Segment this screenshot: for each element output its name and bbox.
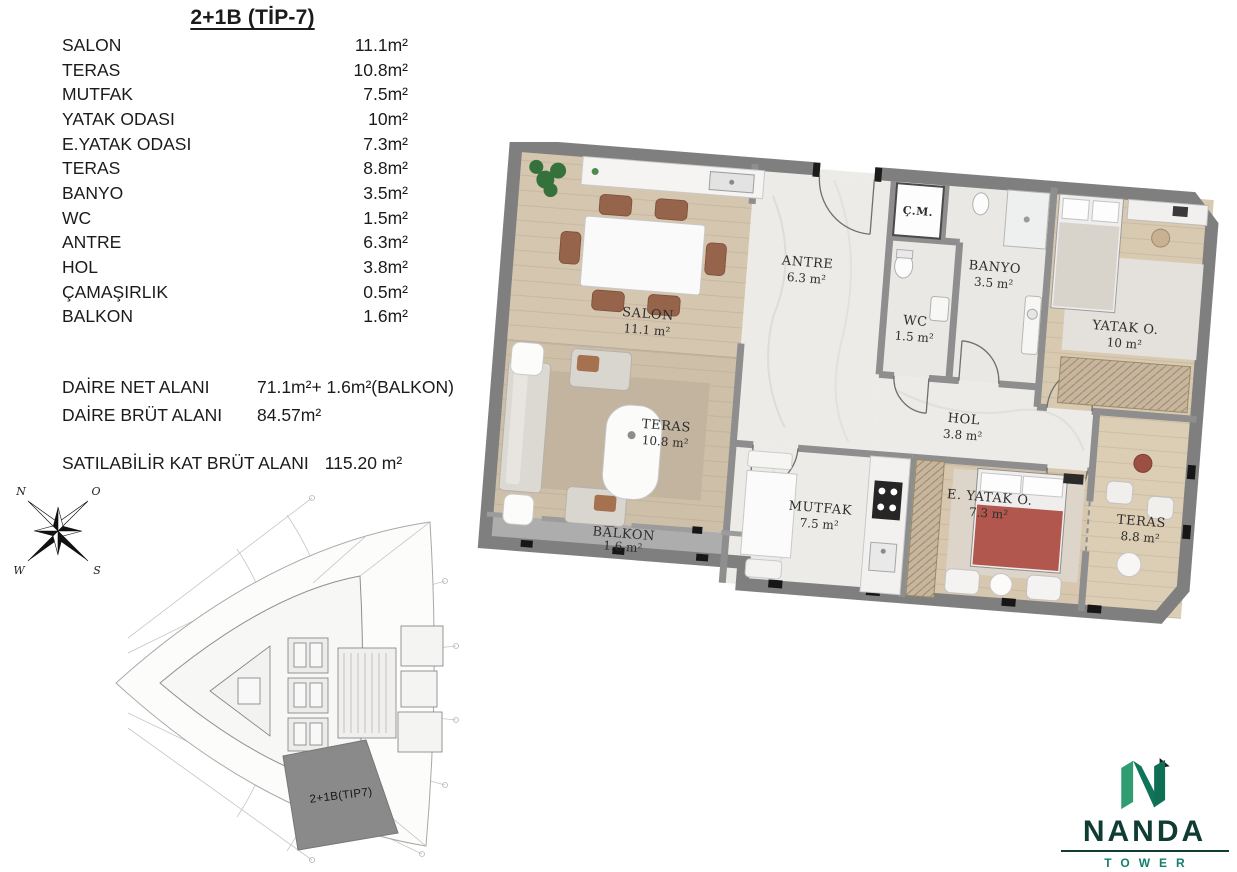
room-label: E.YATAK ODASI	[62, 132, 191, 157]
nanda-n-mark-icon	[1109, 758, 1181, 815]
room-label-wc: WC	[903, 313, 929, 330]
table-row: WC1.5m²	[62, 206, 408, 231]
room-area: 3.8m²	[363, 255, 408, 280]
room-label: ANTRE	[62, 230, 121, 255]
room-area-yatak: 10 m²	[1106, 335, 1142, 352]
room-label: TERAS	[62, 156, 120, 181]
room-area: 7.3m²	[363, 132, 408, 157]
logo-subtitle: TOWER	[1095, 856, 1193, 870]
compass-star	[28, 501, 88, 561]
room-label-hol: HOL	[947, 411, 981, 428]
compass-north-label: N	[15, 485, 26, 498]
gross-area-row: DAİRE BRÜT ALANI 84.57m²	[62, 402, 482, 430]
nanda-tower-logo: NANDA TOWER	[1052, 758, 1237, 870]
room-label: WC	[62, 206, 91, 231]
table-row: SALON11.1m²	[62, 33, 408, 58]
table-row: E.YATAK ODASI7.3m²	[62, 132, 408, 157]
plan-rotated-group: SALON 11.1 m² TERAS 10.8 m² BALKON 1.6 m…	[483, 142, 1218, 620]
table-row: BALKON1.6m²	[62, 304, 408, 329]
net-area-value: 71.1m²+ 1.6m²(BALKON)	[257, 374, 454, 402]
logo-wordmark: NANDA	[1083, 817, 1206, 847]
room-area: 1.6m²	[363, 304, 408, 329]
room-area: 10m²	[368, 107, 408, 132]
table-row: ÇAMAŞIRLIK0.5m²	[62, 280, 408, 305]
table-row: BANYO3.5m²	[62, 181, 408, 206]
room-area: 7.5m²	[363, 82, 408, 107]
table-row: ANTRE6.3m²	[62, 230, 408, 255]
compass-west-label: W	[13, 564, 26, 577]
room-area: 0.5m²	[363, 280, 408, 305]
room-area: 11.1m²	[355, 33, 408, 58]
table-row: HOL3.8m²	[62, 255, 408, 280]
room-area: 8.8m²	[363, 156, 408, 181]
room-area: 1.5m²	[363, 206, 408, 231]
gross-area-value: 84.57m²	[257, 402, 321, 430]
floor-plan-sheet: { "title": "2+1B (TİP-7)", "room_list": …	[0, 0, 1237, 872]
room-label: HOL	[62, 255, 98, 280]
room-area: 6.3m²	[363, 230, 408, 255]
area-summary: DAİRE NET ALANI 71.1m²+ 1.6m²(BALKON) DA…	[62, 374, 482, 429]
floor-plan-render: SALON 11.1 m² TERAS 10.8 m² BALKON 1.6 m…	[458, 142, 1237, 687]
table-row: TERAS10.8m²	[62, 58, 408, 83]
room-area: 10.8m²	[354, 58, 408, 83]
page-title: 2+1B (TİP-7)	[75, 6, 430, 30]
room-label-cm: Ç.M.	[902, 204, 933, 219]
net-area-label: DAİRE NET ALANI	[62, 374, 257, 402]
room-label: BANYO	[62, 181, 123, 206]
room-label: BALKON	[62, 304, 133, 329]
room-area-table: SALON11.1m² TERAS10.8m² MUTFAK7.5m² YATA…	[62, 33, 408, 329]
room-area: 3.5m²	[363, 181, 408, 206]
room-label: YATAK ODASI	[62, 107, 175, 132]
table-row: YATAK ODASI10m²	[62, 107, 408, 132]
sellable-area-value: 115.20 m²	[325, 450, 403, 476]
net-area-row: DAİRE NET ALANI 71.1m²+ 1.6m²(BALKON)	[62, 374, 482, 402]
room-label: ÇAMAŞIRLIK	[62, 280, 168, 305]
table-row: TERAS8.8m²	[62, 156, 408, 181]
gross-area-label: DAİRE BRÜT ALANI	[62, 402, 257, 430]
key-plan: 2+1B(TIP7)	[98, 488, 470, 870]
table-row: MUTFAK7.5m²	[62, 82, 408, 107]
room-label: SALON	[62, 33, 121, 58]
room-label: TERAS	[62, 58, 120, 83]
room-label: MUTFAK	[62, 82, 133, 107]
logo-divider	[1061, 850, 1229, 852]
